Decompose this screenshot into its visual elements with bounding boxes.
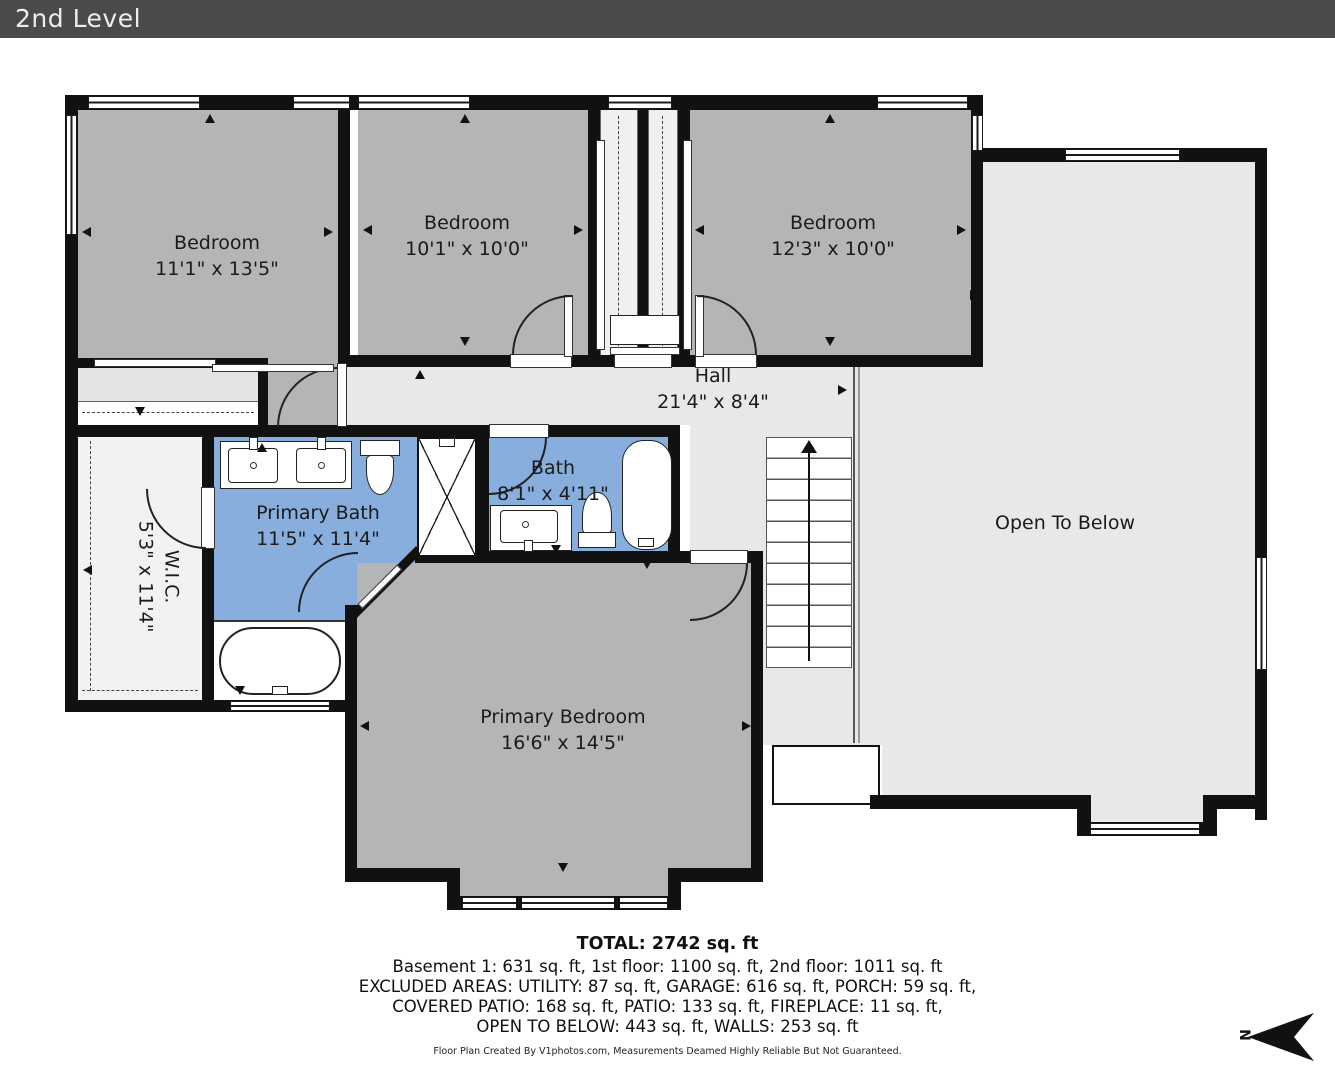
closet-rod-dashed-line <box>82 412 254 413</box>
garden-tub <box>219 627 341 695</box>
window-mullion <box>516 897 522 909</box>
room-label-hall: Hall 21'4" x 8'4" <box>613 364 813 415</box>
toilet-tank <box>578 532 616 548</box>
dimension-tick <box>825 114 835 123</box>
door-leaf <box>337 363 347 427</box>
dimension-tick <box>558 863 568 872</box>
linen-closet <box>610 315 680 345</box>
sliding-door <box>212 364 334 372</box>
summary-line: Basement 1: 631 sq. ft, 1st floor: 1100 … <box>0 957 1335 977</box>
sliding-door <box>683 140 692 350</box>
room-fill-open-below <box>983 162 1255 795</box>
window <box>66 115 77 235</box>
window <box>462 897 668 909</box>
total-area: TOTAL: 2742 sq. ft <box>0 934 1335 954</box>
door-opening <box>510 354 572 368</box>
room-name: Open To Below <box>945 511 1185 537</box>
window <box>88 96 200 109</box>
room-fill-primary-bedroom-bay <box>460 868 668 896</box>
dimension-tick <box>825 337 835 346</box>
wall <box>751 551 763 880</box>
room-name: Primary Bedroom <box>413 705 713 731</box>
stairs-direction-line <box>808 449 810 661</box>
window <box>972 115 983 151</box>
room-dims: 11'5" x 11'4" <box>198 527 438 553</box>
room-fill-hall-finger <box>690 425 763 553</box>
stair-railing-inner <box>858 367 860 743</box>
dimension-tick <box>970 290 979 300</box>
north-arrow-icon <box>1246 1010 1318 1062</box>
sink <box>500 510 558 543</box>
room-name: Bedroom <box>713 211 953 237</box>
stair-railing <box>853 367 855 743</box>
tub-faucet-icon <box>272 686 288 695</box>
summary-line: EXCLUDED AREAS: UTILITY: 87 sq. ft, GARA… <box>0 977 1335 997</box>
room-label-bath: Bath 8'1" x 4'11" <box>453 456 653 507</box>
dimension-tick <box>415 370 425 379</box>
dimension-tick <box>135 407 145 416</box>
room-fill-open-below-bay <box>1090 795 1203 825</box>
tub-alcove-edge <box>214 620 345 622</box>
area-summary: TOTAL: 2742 sq. ft Basement 1: 631 sq. f… <box>0 934 1335 1037</box>
room-label-bedroom-tl: Bedroom 11'1" x 13'5" <box>97 231 337 282</box>
wic-rod-horizontal <box>82 690 198 691</box>
room-dims: 21'4" x 8'4" <box>613 390 813 416</box>
wall <box>345 868 460 882</box>
sliding-door <box>94 359 216 367</box>
dimension-tick <box>642 560 652 569</box>
dimension-tick <box>83 565 92 575</box>
drain-icon <box>522 521 529 528</box>
drain-icon <box>250 462 257 469</box>
closet-left-rod <box>618 116 619 346</box>
fireplace-chase <box>772 745 880 805</box>
window <box>358 96 470 109</box>
room-dims: 8'1" x 4'11" <box>453 482 653 508</box>
dimension-tick <box>957 225 966 235</box>
room-dims: 12'3" x 10'0" <box>713 237 953 263</box>
dimension-tick <box>551 545 561 554</box>
dimension-tick <box>257 443 267 452</box>
closet-shelf <box>78 368 258 402</box>
room-label-open-below: Open To Below <box>945 511 1185 537</box>
dimension-tick <box>695 225 704 235</box>
room-label-primary-bedroom: Primary Bedroom 16'6" x 14'5" <box>413 705 713 756</box>
drain-icon <box>318 462 325 469</box>
door-opening <box>690 550 748 564</box>
room-label-primary-bath: Primary Bath 11'5" x 11'4" <box>198 501 438 552</box>
dimension-tick <box>235 686 245 695</box>
wall <box>65 425 214 437</box>
wall <box>870 795 1090 809</box>
sliding-door <box>596 140 605 350</box>
dimension-tick <box>460 337 470 346</box>
room-name: Primary Bath <box>198 501 438 527</box>
dimension-tick <box>360 721 369 731</box>
wall <box>202 425 214 712</box>
room-dims: 11'1" x 13'5" <box>97 257 337 283</box>
toilet-tank <box>360 440 400 456</box>
room-dims: 16'6" x 14'5" <box>413 731 713 757</box>
dimension-tick <box>460 114 470 123</box>
window <box>1090 823 1200 835</box>
room-name: W.I.C. <box>158 477 184 677</box>
room-label-bedroom-right: Bedroom 12'3" x 10'0" <box>713 211 953 262</box>
summary-line: COVERED PATIO: 168 sq. ft, PATIO: 133 sq… <box>0 997 1335 1017</box>
shower-head-icon <box>439 438 455 447</box>
level-title-bar: 2nd Level <box>0 0 1335 38</box>
wall <box>214 425 489 437</box>
wall <box>1255 148 1267 820</box>
room-dims: 5'3" x 11'4" <box>132 477 158 677</box>
stairs-up-arrow-icon <box>801 440 817 453</box>
window <box>293 96 350 109</box>
room-label-wic: W.I.C. 5'3" x 11'4" <box>132 477 183 677</box>
wall <box>345 605 357 880</box>
room-fill-open-below-left <box>882 745 983 795</box>
faucet-icon <box>317 437 326 450</box>
faucet-icon <box>524 540 533 552</box>
room-name: Bedroom <box>97 231 337 257</box>
room-label-bedroom-mid: Bedroom 10'1" x 10'0" <box>347 211 587 262</box>
dimension-tick <box>742 721 751 731</box>
room-name: Bedroom <box>347 211 587 237</box>
window <box>230 701 330 711</box>
dimension-tick <box>205 114 215 123</box>
window <box>608 96 672 109</box>
dimension-tick <box>838 385 847 395</box>
dimension-tick <box>82 227 91 237</box>
window <box>1065 149 1180 161</box>
wall <box>1203 795 1267 809</box>
summary-line: OPEN TO BELOW: 443 sq. ft, WALLS: 253 sq… <box>0 1017 1335 1037</box>
room-dims: 10'1" x 10'0" <box>347 237 587 263</box>
room-name: Bath <box>453 456 653 482</box>
floor-plan-page: Bedroom 11'1" x 13'5" Bedroom 10'1" x 10… <box>0 0 1335 1080</box>
closet-right-rod <box>662 116 663 346</box>
window <box>877 96 968 109</box>
window-mullion <box>614 897 620 909</box>
wall <box>668 868 763 882</box>
window <box>1256 557 1267 670</box>
page-title: 2nd Level <box>15 4 141 33</box>
tub-faucet-icon <box>638 538 654 547</box>
credit-line: Floor Plan Created By V1photos.com, Meas… <box>0 1046 1335 1057</box>
door-opening <box>489 424 549 438</box>
room-name: Hall <box>613 364 813 390</box>
